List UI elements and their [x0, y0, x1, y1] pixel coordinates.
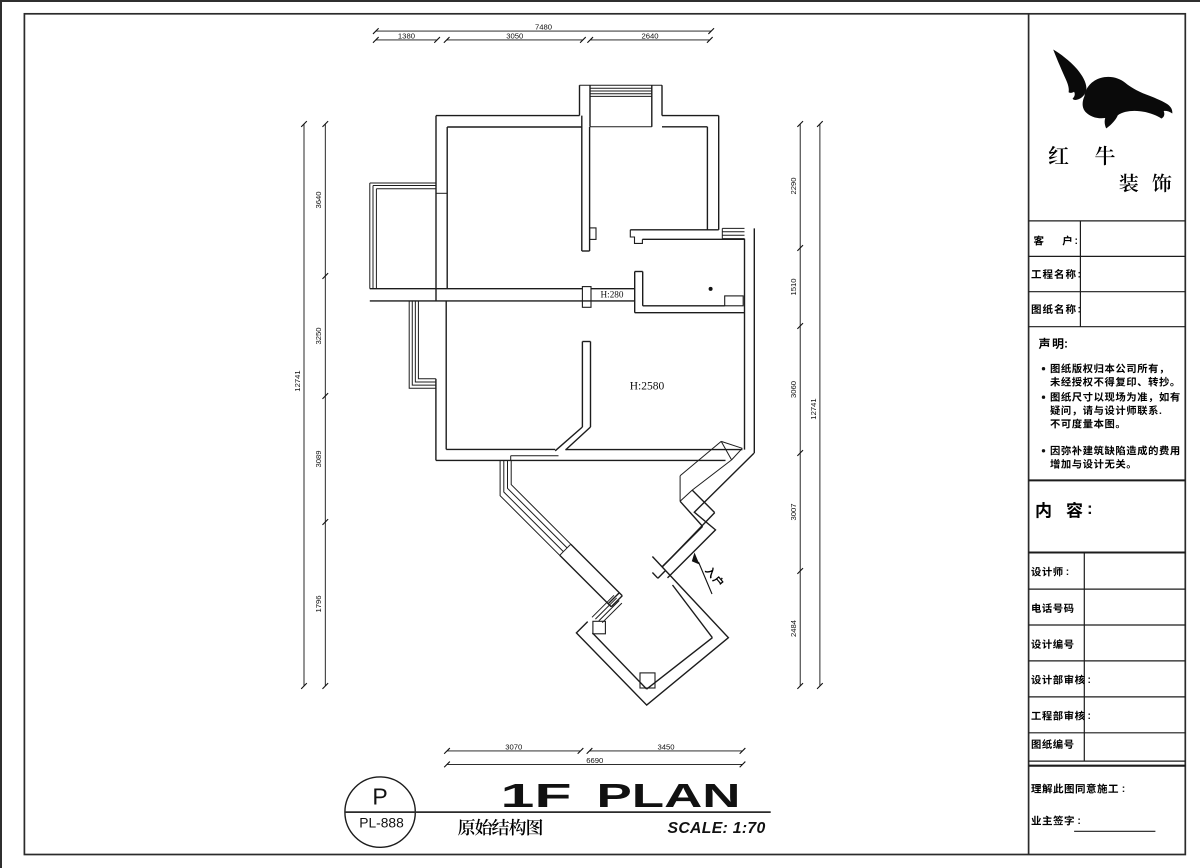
svg-text:H:2580: H:2580 — [630, 381, 665, 393]
svg-text::: : — [1078, 304, 1082, 316]
svg-text:1F: 1F — [501, 777, 572, 814]
svg-text::: : — [1066, 567, 1069, 578]
svg-text:3089: 3089 — [314, 450, 323, 467]
svg-text:3070: 3070 — [505, 742, 522, 751]
svg-text:PL-888: PL-888 — [359, 816, 404, 831]
svg-text:3007: 3007 — [789, 503, 798, 520]
svg-text:2640: 2640 — [641, 31, 658, 40]
svg-text:12741: 12741 — [293, 370, 302, 391]
svg-text::: : — [1077, 815, 1081, 827]
svg-text::: : — [1088, 711, 1091, 722]
svg-text:2484: 2484 — [789, 619, 798, 637]
svg-text::: : — [1064, 337, 1068, 351]
svg-text::: : — [1088, 675, 1091, 686]
svg-text::: : — [1075, 235, 1079, 247]
svg-text:.: . — [1159, 406, 1162, 417]
svg-text:3640: 3640 — [314, 191, 323, 208]
svg-text:PLAN: PLAN — [597, 777, 741, 814]
svg-text:SCALE: 1:70: SCALE: 1:70 — [668, 820, 766, 837]
svg-text:1796: 1796 — [314, 595, 323, 612]
svg-text:H:280: H:280 — [601, 290, 624, 300]
svg-text::: : — [1087, 499, 1093, 518]
svg-text:3250: 3250 — [314, 327, 323, 344]
svg-text:P: P — [372, 784, 387, 810]
svg-text:3050: 3050 — [506, 31, 523, 40]
svg-text:6690: 6690 — [586, 756, 603, 765]
svg-text:12741: 12741 — [809, 398, 818, 419]
svg-text::: : — [1122, 783, 1126, 795]
svg-text:3060: 3060 — [789, 381, 798, 398]
svg-text:2290: 2290 — [789, 177, 798, 194]
svg-text:1510: 1510 — [789, 278, 798, 295]
svg-text:3450: 3450 — [657, 742, 674, 751]
svg-text:1380: 1380 — [398, 31, 415, 40]
svg-text:7480: 7480 — [535, 23, 552, 32]
svg-text::: : — [1078, 269, 1082, 281]
